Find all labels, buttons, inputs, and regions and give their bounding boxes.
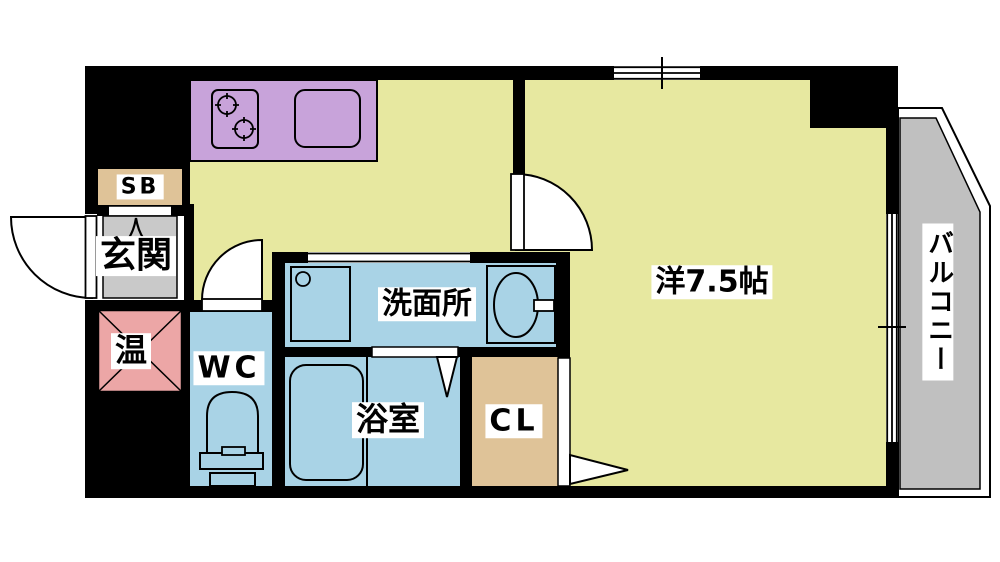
entrance-label: 玄関 (96, 236, 176, 276)
wall-kitchen-mainroom (513, 80, 525, 174)
wall-pillar-top-right (810, 66, 898, 128)
wc-floor (190, 312, 272, 486)
washroom-label: 洗面所 (378, 287, 476, 321)
wall-entrance-kitchen (184, 204, 194, 302)
closet-label: CL (485, 404, 542, 438)
entrance-door (11, 214, 97, 300)
water-heater-label: 温 (111, 333, 151, 369)
wall-right-lower (886, 442, 898, 498)
balcony-label: バルコニー (922, 224, 953, 381)
floor-plan-drawing (0, 0, 1000, 562)
wall-closet-left (460, 347, 472, 486)
washroom-opening (308, 252, 470, 263)
wall-bottom (85, 486, 898, 498)
bathroom-label: 浴室 (352, 402, 424, 438)
floor-plan: SB 玄関 温 WC 洗面所 浴室 CL 洋7.5帖 バルコニー (0, 0, 1000, 562)
wall-right-upper (886, 128, 898, 214)
wall-top (85, 66, 898, 80)
wall-wc-bath (272, 252, 285, 486)
entrance-step (97, 206, 183, 216)
shoe-box-label: SB (117, 174, 164, 199)
main-room-label: 洋7.5帖 (651, 265, 772, 299)
wc-label: WC (193, 351, 264, 385)
kitchen-counter (190, 80, 377, 161)
wall-washroom-right (556, 252, 570, 362)
